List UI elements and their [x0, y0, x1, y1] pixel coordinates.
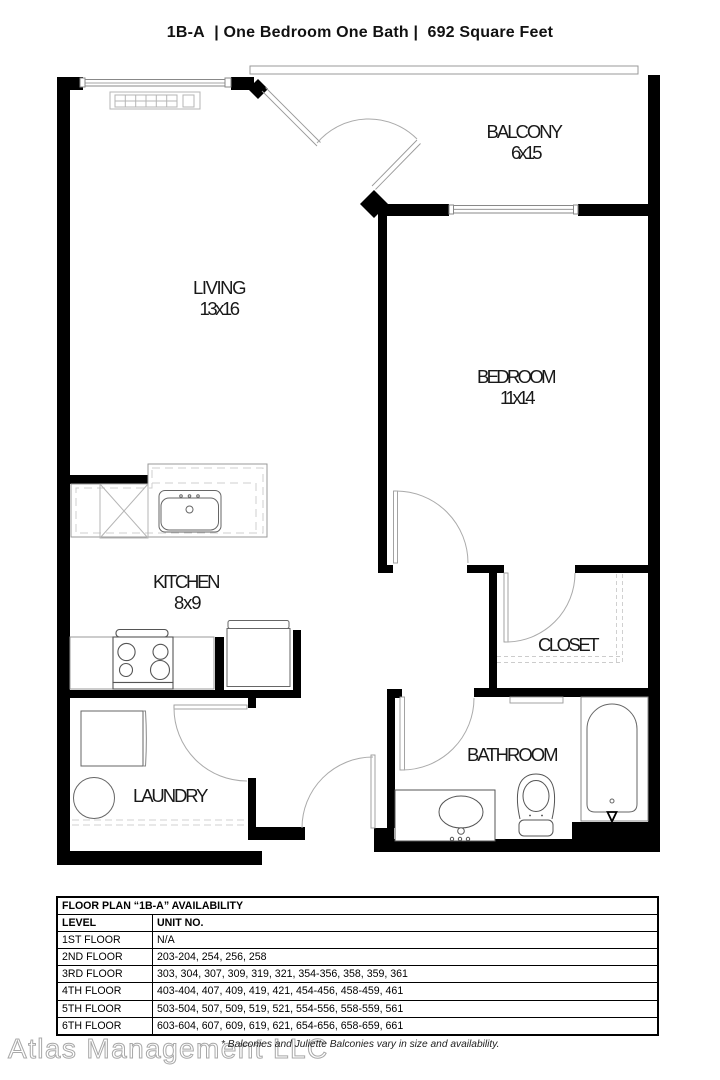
svg-text:13x16: 13x16	[200, 298, 241, 319]
svg-text:LAUNDRY: LAUNDRY	[133, 785, 209, 806]
svg-text:LIVING: LIVING	[193, 277, 247, 298]
svg-text:6x15: 6x15	[511, 142, 543, 163]
svg-text:11x14: 11x14	[500, 387, 536, 408]
svg-text:8x9: 8x9	[174, 592, 202, 613]
svg-text:BEDROOM: BEDROOM	[477, 366, 557, 387]
svg-text:KITCHEN: KITCHEN	[153, 571, 221, 592]
svg-text:BALCONY: BALCONY	[487, 121, 564, 142]
svg-text:BATHROOM: BATHROOM	[467, 744, 559, 765]
svg-text:CLOSET: CLOSET	[538, 634, 600, 655]
